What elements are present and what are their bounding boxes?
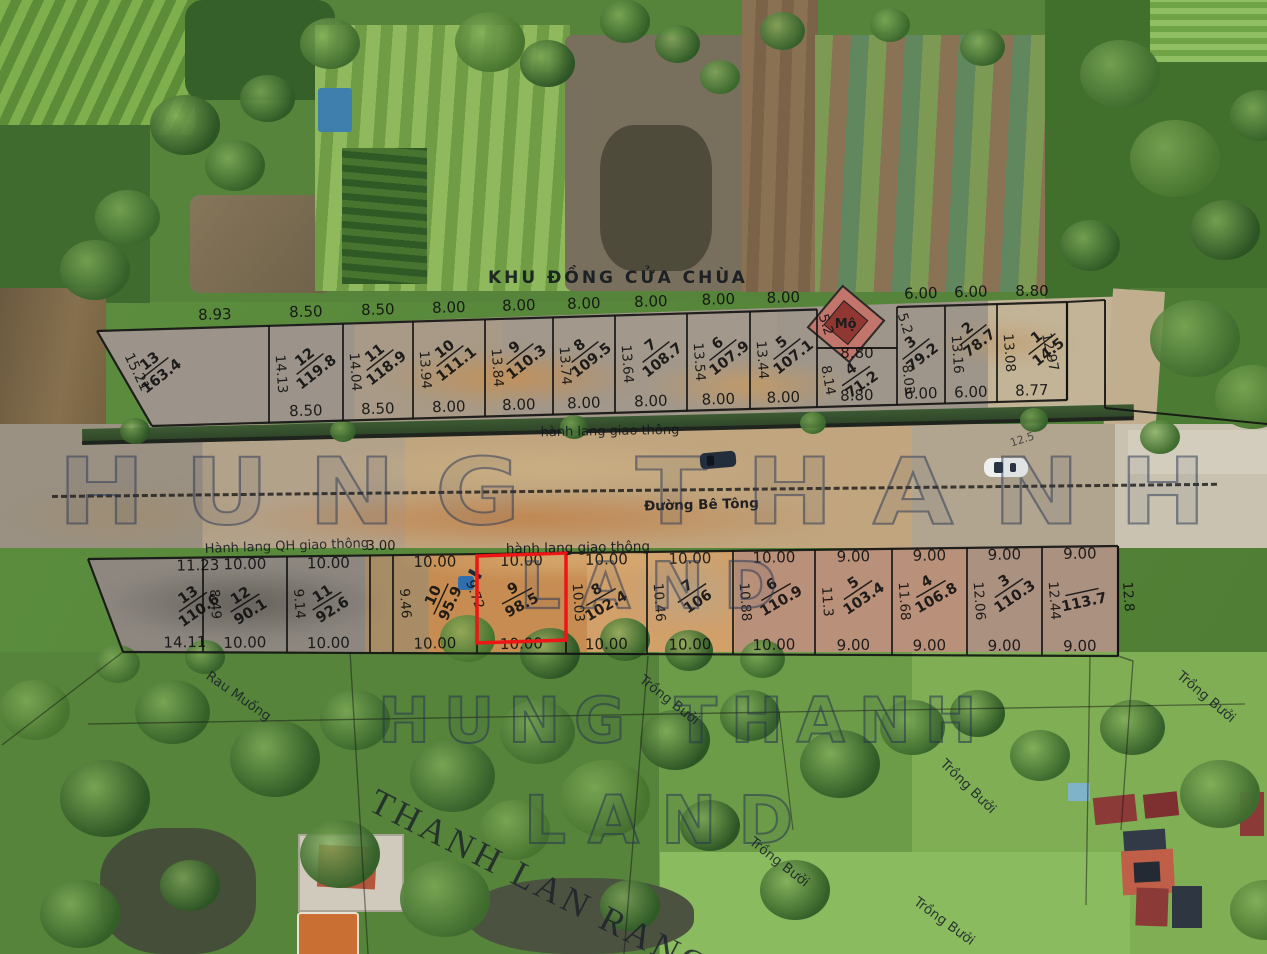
map-label: 10.00 <box>668 635 711 654</box>
map-label: 9.00 <box>988 545 1022 564</box>
map-label: 8.00 <box>567 393 601 412</box>
plot-label-text: 5 <box>845 574 862 593</box>
map-label: 8.00 <box>432 397 466 416</box>
boundary-line <box>1086 656 1090 905</box>
map-label: 13.08 <box>1000 333 1019 373</box>
map-label: 8.00 <box>567 294 601 313</box>
map-label: 8.50 <box>361 300 395 319</box>
map-label: 8.00 <box>432 298 466 317</box>
map-label: 6.00 <box>904 284 938 303</box>
map-label: 11.68 <box>895 581 914 621</box>
plot-label-text: 5 <box>773 333 791 352</box>
map-label: 10.00 <box>307 554 350 573</box>
boundary-line <box>2 652 123 745</box>
plot-label-text: 8 <box>571 336 589 355</box>
map-label: 12.06 <box>970 581 989 621</box>
map-label: 13.94 <box>416 350 435 390</box>
plot-label: 7108.7 <box>628 325 686 381</box>
plot-label-text: 3 <box>902 333 920 352</box>
plot-label: 113.7 <box>1060 587 1109 615</box>
map-label: 9.00 <box>1063 637 1097 656</box>
map-label: 5.2 <box>815 312 837 337</box>
plot-label-text: 113.7 <box>1060 590 1108 615</box>
boundary-line <box>1105 408 1267 424</box>
map-label: 10.00 <box>585 635 628 654</box>
boundary-line <box>897 302 1067 307</box>
map-label: 14.04 <box>346 352 365 392</box>
map-label: 9.00 <box>988 636 1022 655</box>
map-label: 8.50 <box>289 302 323 321</box>
map-label: 10.00 <box>413 634 456 653</box>
map-label: 10.00 <box>223 555 266 574</box>
map-label: 10.00 <box>223 633 266 652</box>
map-label: 9.14 <box>290 588 308 619</box>
map-label: 8.50 <box>361 399 395 418</box>
map-label: 8.00 <box>502 395 536 414</box>
map-label: 6.00 <box>904 384 938 403</box>
map-label: 8.00 <box>766 388 800 407</box>
map-label: 8.00 <box>701 390 735 409</box>
map-label: 11.23 <box>176 556 219 575</box>
map-label: 6.00 <box>954 383 988 402</box>
map-label: 8.77 <box>1015 381 1049 400</box>
map-label: 13.84 <box>488 348 507 388</box>
watermark-hungthanh-lower: HUNG THANH <box>378 684 991 757</box>
map-label: 8.00 <box>634 292 668 311</box>
plot-label-text: 7 <box>642 336 660 355</box>
map-label: 10.00 <box>413 552 456 571</box>
map-label: 8.80 <box>840 386 874 405</box>
plot-label-text: 6 <box>709 334 727 353</box>
watermark-land-road: LAND <box>520 550 797 624</box>
map-label: 10.00 <box>752 635 795 654</box>
boundary-line <box>350 652 368 954</box>
map-label: 9.00 <box>1063 544 1097 563</box>
map-label: 11.3 <box>818 586 836 617</box>
map-label: 8.49 <box>206 589 224 620</box>
map-label: 9.72 <box>462 578 487 612</box>
area-title: KHU ĐỒNG CỬA CHÙA <box>488 268 748 288</box>
map-label: 12.8 <box>1119 581 1137 612</box>
map-label: 8.14 <box>817 364 838 396</box>
map-label: 9.00 <box>913 546 947 565</box>
plot-label: 5103.4 <box>830 564 888 619</box>
map-label: 13.54 <box>690 342 709 382</box>
map-label: 9.46 <box>396 588 414 619</box>
map-label: 8.50 <box>289 401 323 420</box>
boundary-line <box>1067 300 1105 302</box>
boundary-line <box>1118 656 1133 661</box>
map-label: 8.00 <box>701 290 735 309</box>
map-label: 8.93 <box>198 305 232 324</box>
map-label: 9.00 <box>913 636 947 655</box>
map-label: 13.64 <box>618 344 637 384</box>
boundary-line <box>88 559 123 652</box>
plot-label-text: 3 <box>996 572 1013 591</box>
map-label: 14.11 <box>163 633 206 652</box>
map-label: 10.00 <box>307 634 350 653</box>
watermark-land-lower: LAND <box>524 782 815 859</box>
plot-label-text: 9 <box>506 338 524 357</box>
map-label: 8.80 <box>1015 282 1048 300</box>
map-label: 6.00 <box>954 282 988 301</box>
map-label: 9.00 <box>837 547 871 566</box>
aerial-scene: Mộ 13163.48.9314.1312119.88.508.5014.041… <box>0 0 1267 954</box>
map-label: 13.44 <box>753 340 772 380</box>
map-label: 8.00 <box>766 288 800 307</box>
boundary-line <box>1121 661 1133 830</box>
plot-label-text: 4 <box>843 360 860 379</box>
map-label: 13.16 <box>948 335 967 375</box>
plot-label: 3110.3 <box>981 562 1039 617</box>
map-label: 8.00 <box>634 392 668 411</box>
map-label: 9.00 <box>837 636 871 655</box>
map-label: 8.80 <box>840 344 873 362</box>
plot-label: 1192.6 <box>303 578 352 627</box>
watermark-hungthanh-road: HUNG THANH <box>58 438 1246 546</box>
plot-label: 1095.9 <box>419 576 466 623</box>
map-label: 14.13 <box>272 354 291 394</box>
plot-label: 1290.1 <box>221 580 270 629</box>
map-label: 8.00 <box>502 296 536 315</box>
